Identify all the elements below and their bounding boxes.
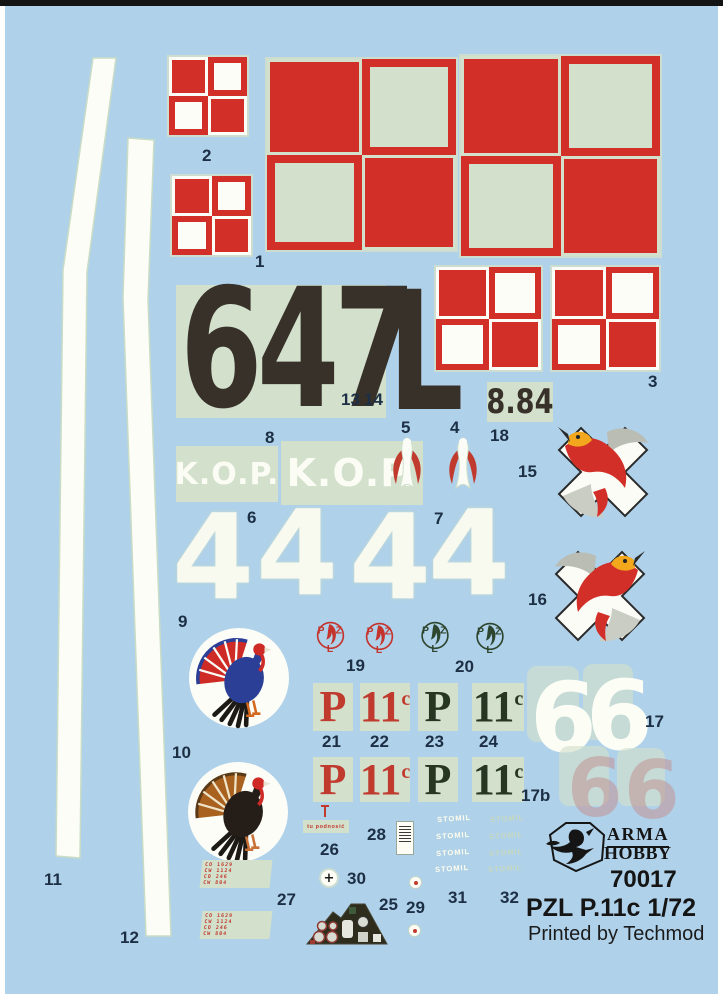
part-label-2: 2	[202, 146, 211, 166]
tactical-number-4: 4	[172, 498, 254, 616]
part-label-29: 29	[406, 898, 425, 918]
svg-text:L: L	[327, 644, 333, 654]
checkerboard-medium-b	[552, 267, 659, 370]
stencil-text-26: tu podnosić	[303, 820, 349, 833]
hub-dot-decal	[409, 925, 420, 936]
part-label-32: 32	[500, 888, 519, 908]
turkey-mascot-brown-icon	[187, 761, 289, 863]
type-marking-11c-black: 11c	[472, 683, 524, 731]
svg-text:L: L	[376, 645, 382, 655]
hub-dot-decal	[410, 877, 421, 888]
tactical-number-4: 4	[349, 498, 431, 616]
part-label-20: 20	[455, 657, 474, 677]
tactical-number-6-faded: 6	[624, 751, 680, 831]
svg-text:P: P	[318, 625, 325, 636]
cross-marker-decal: +	[321, 870, 337, 886]
type-marking-P-black: P	[425, 758, 452, 802]
svg-text:Z: Z	[385, 626, 391, 637]
serial-letter-L: L	[388, 272, 458, 432]
svg-text:Z: Z	[440, 625, 446, 636]
part-label-27: 27	[277, 890, 296, 910]
product-code: 70017	[610, 866, 677, 894]
part-label-11: 11	[44, 870, 62, 890]
part-label-18: 18	[490, 426, 509, 446]
part-label-16: 16	[528, 590, 547, 610]
squadron-cross-eagle-icon	[547, 416, 659, 528]
brand-name-line2: HOBBY	[604, 843, 672, 864]
pzl-logo-green-icon: P Z L	[474, 621, 506, 655]
date-code-film: 8.84	[487, 382, 553, 422]
squadron-cross-eagle-icon	[544, 540, 656, 652]
stencil-block: CO 1629CW 1124 CO 246CW 804	[200, 860, 273, 888]
part-label-17b: 17b	[521, 786, 550, 806]
part-label-25: 25	[379, 895, 398, 915]
part-label-24: 24	[479, 732, 498, 752]
date-code: 8.84	[486, 382, 553, 422]
part-label-8: 8	[265, 428, 274, 448]
part-label-21: 21	[322, 732, 341, 752]
part-label-9: 9	[178, 612, 187, 632]
tactical-number-6-faded: 6	[567, 749, 623, 829]
svg-text:Z: Z	[336, 625, 342, 636]
checkerboard-large-b	[461, 56, 660, 256]
printer-credit: Printed by Techmod	[528, 923, 704, 946]
type-marking-P-black: P	[425, 685, 452, 729]
part-label-14: 14	[364, 390, 383, 410]
arma-hobby-hussar-logo-icon	[542, 820, 608, 874]
tow-hook-icon	[320, 805, 330, 818]
part-label-19: 19	[346, 656, 365, 676]
data-placard-decal	[396, 821, 414, 855]
part-label-30: 30	[347, 869, 366, 889]
turkey-mascot-blue-icon	[188, 627, 290, 729]
svg-text:L: L	[431, 644, 437, 654]
checkerboard-small-a	[169, 57, 247, 135]
type-marking-11c-black: 11c	[472, 757, 524, 802]
checkerboard-small-b	[172, 176, 251, 255]
instrument-panel-decal	[305, 900, 389, 946]
type-marking-11c-red: 11c	[360, 757, 410, 802]
svg-text:P: P	[367, 626, 374, 637]
svg-text:P: P	[477, 626, 484, 637]
part-label-4: 4	[450, 418, 459, 438]
decal-sheet: 647 L 8.84 K.O.P. K.O.P.	[0, 0, 723, 1000]
svg-text:P: P	[422, 625, 429, 636]
part-label-28: 28	[367, 825, 386, 845]
checkerboard-large-a	[267, 59, 456, 250]
pzl-logo-red-icon: P Z L	[315, 620, 346, 654]
eagle-emblem-icon	[390, 436, 426, 492]
part-label-23: 23	[425, 732, 444, 752]
type-marking-11c-red: 11c	[360, 683, 410, 731]
tactical-number-4: 4	[256, 494, 338, 612]
product-title: PZL P.11c 1/72	[526, 894, 696, 923]
type-marking-P-red: P	[320, 758, 347, 802]
part-label-7: 7	[434, 509, 443, 529]
part-label-15: 15	[518, 462, 537, 482]
pzl-logo-red-icon: P Z L	[364, 621, 395, 655]
part-label-3: 3	[648, 372, 657, 392]
part-label-1: 1	[255, 252, 264, 272]
part-label-31: 31	[448, 888, 467, 908]
svg-text:L: L	[486, 645, 492, 655]
svg-text:Z: Z	[495, 626, 501, 637]
part-label-26: 26	[320, 840, 339, 860]
pzl-logo-green-icon: P Z L	[419, 620, 451, 654]
part-label-22: 22	[370, 732, 389, 752]
part-label-5: 5	[401, 418, 410, 438]
part-label-12: 12	[120, 928, 139, 948]
part-label-10: 10	[172, 743, 191, 763]
stencil-block: CO 1629CW 1124 CO 246CW 804	[200, 911, 273, 939]
type-marking-P-red: P	[320, 685, 347, 729]
part-label-17: 17	[645, 712, 664, 732]
part-label-6: 6	[247, 508, 256, 528]
part-label-13: 13	[341, 390, 360, 410]
